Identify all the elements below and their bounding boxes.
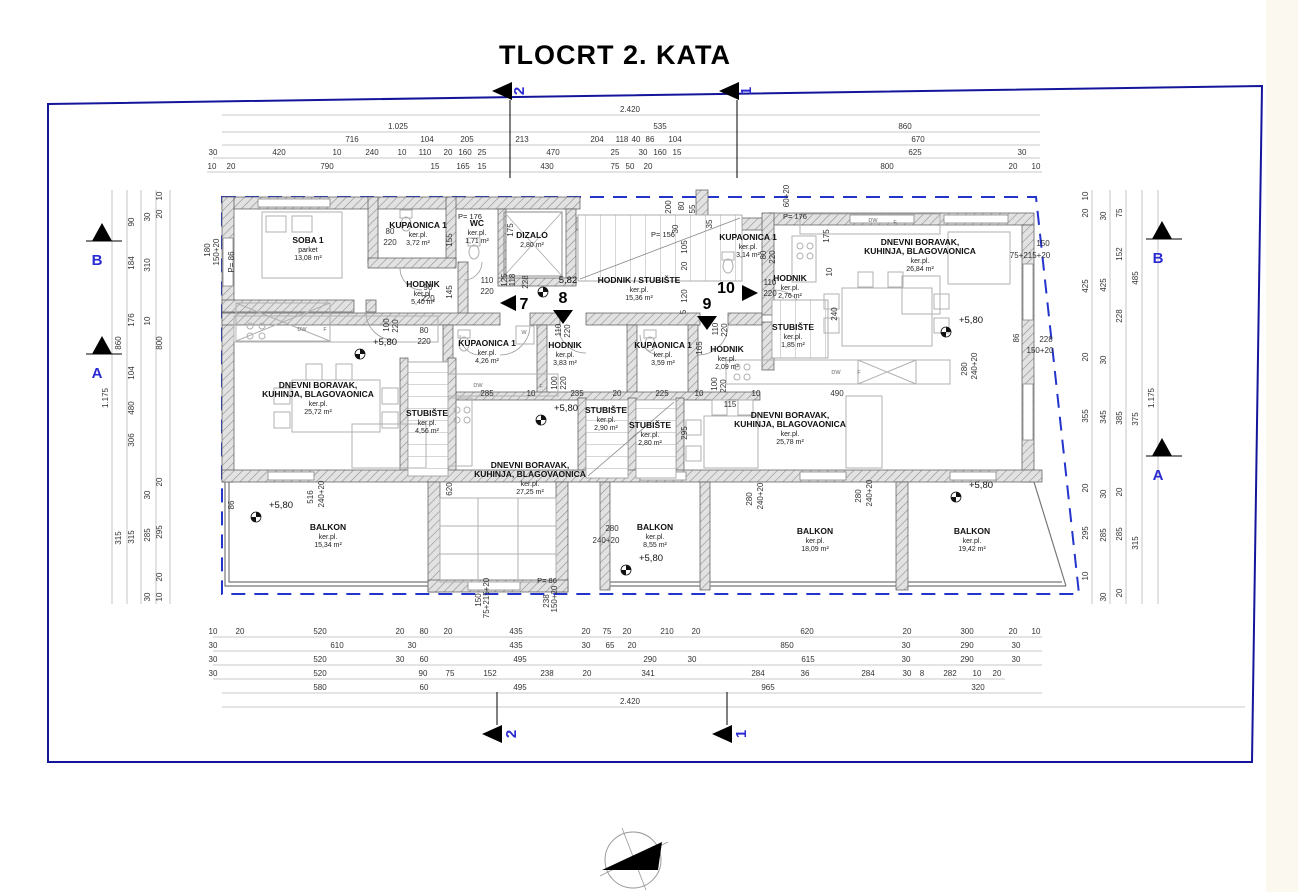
dim-label: 36 — [801, 669, 810, 678]
dim-label: 20 — [1081, 208, 1090, 217]
dim-label: 485 — [1131, 271, 1140, 285]
level-label: +5,80 — [959, 315, 983, 326]
dim-label: 30 — [408, 641, 417, 650]
dim-label: 150 — [1036, 239, 1050, 248]
dim-label: 110 — [554, 323, 563, 336]
level-marker-icon — [256, 512, 261, 517]
appliance-label: W — [521, 330, 527, 336]
dim-label: 20 — [903, 627, 912, 636]
dim-label: 86 — [227, 500, 236, 509]
level-marker-icon — [946, 327, 951, 332]
dim-label: 118 — [508, 273, 517, 286]
dim-label: 10 — [1081, 571, 1090, 580]
room-area: 26,84 m² — [906, 266, 934, 273]
dim-label: 55 — [688, 204, 697, 213]
dim-label: 30 — [902, 655, 911, 664]
dim-label: 75 — [611, 162, 620, 171]
dim-label: 20 — [155, 572, 164, 581]
dim-label: 425 — [1081, 279, 1090, 293]
dim-label: 30 — [688, 655, 697, 664]
dim-label: 228 — [1115, 309, 1124, 323]
dim-label: 35 — [705, 219, 714, 228]
dim-label: 40 — [632, 135, 641, 144]
dim-label: 860 — [898, 122, 912, 131]
dim-label: 315 — [1131, 536, 1140, 550]
dim-label: 86 — [646, 135, 655, 144]
dim-label: 20 — [396, 627, 405, 636]
dim-label: 470 — [546, 148, 560, 157]
dim-label: 20 — [623, 627, 632, 636]
apartment-arrow-icon — [742, 285, 758, 301]
dim-label: 10 — [1032, 627, 1041, 636]
dim-label: 240+20 — [970, 352, 979, 379]
floor-plan-page: TLOCRT 2. KATA — [0, 0, 1298, 892]
dim-label: 60 — [420, 683, 429, 692]
dim-label: 160 — [458, 148, 472, 157]
room-area: 8,55 m² — [643, 542, 667, 549]
room-area: 2,76 m² — [778, 293, 802, 300]
room-area: 2,80 m² — [638, 440, 662, 447]
dim-label: 220 — [421, 294, 435, 303]
dim-label: 355 — [1081, 409, 1090, 423]
dim-label: 10 — [155, 191, 164, 200]
dim-label: 290 — [960, 655, 974, 664]
dim-label: 228 — [521, 275, 530, 289]
level-label: +5,80 — [554, 403, 578, 414]
dim-label: 15 — [478, 162, 487, 171]
dim-label: 228 — [1039, 335, 1053, 344]
room-area: 4,26 m² — [475, 358, 499, 365]
dim-label: 285 — [480, 389, 494, 398]
dim-label: 80 — [677, 201, 686, 210]
dim-label: 30 — [209, 148, 218, 157]
level-label: +5,80 — [969, 480, 993, 491]
dim-label: 800 — [880, 162, 894, 171]
room-name: SOBA 1 — [292, 235, 324, 245]
dim-label: 118 — [616, 135, 629, 144]
section-arrow-icon — [1152, 438, 1172, 456]
apartment-number: 8 — [559, 290, 568, 307]
room-name: STUBIŠTE — [585, 404, 627, 415]
dim-label: 110 — [764, 278, 777, 287]
dim-label: 284 — [751, 669, 765, 678]
dim-label: 430 — [540, 162, 554, 171]
appliance-label: F — [857, 370, 861, 376]
room-name: HODNIK / STUBIŠTE — [598, 274, 681, 285]
dim-label: 20 — [444, 148, 453, 157]
dim-label: 1.175 — [101, 387, 110, 408]
dim-label: 290 — [960, 641, 974, 650]
dim-label: 30 — [902, 641, 911, 650]
dim-label: 30 — [903, 669, 912, 678]
room-finish: ker.pl. — [309, 401, 328, 408]
room-name: KUPAONICA 1 — [719, 232, 777, 242]
level-label: 5,82 — [559, 275, 578, 286]
room-finish: ker.pl. — [963, 538, 982, 545]
room-finish: ker.pl. — [806, 538, 825, 545]
dim-label: 315 — [114, 531, 123, 545]
dim-label: 20 — [993, 669, 1002, 678]
dim-label: 155 — [445, 233, 454, 247]
dim-label: 280 — [854, 489, 863, 503]
dim-label: 86 — [1012, 333, 1021, 342]
appliance-label: DW — [868, 218, 878, 224]
dim-label: 341 — [641, 669, 655, 678]
dim-label: 480 — [127, 401, 136, 415]
dim-label: 15 — [431, 162, 440, 171]
dim-label: 580 — [313, 683, 327, 692]
room-finish: ker.pl. — [319, 534, 338, 541]
dim-label: 104 — [127, 366, 136, 380]
dim-label: 20 — [1115, 588, 1124, 597]
dim-label: 104 — [668, 135, 682, 144]
dim-label: 10 — [527, 389, 536, 398]
level-label: +5,80 — [639, 553, 663, 564]
dim-label: 145 — [445, 285, 454, 299]
dim-label: 435 — [509, 641, 523, 650]
appliance-label: F — [323, 327, 327, 333]
dim-label: 220 — [417, 337, 431, 346]
dim-label: 20 — [583, 669, 592, 678]
dim-label: 280 — [960, 362, 969, 376]
dim-label: 238 — [540, 669, 554, 678]
dim-label: 10 — [825, 267, 834, 276]
room-name: STUBIŠTE — [772, 321, 814, 332]
dim-label: 285 — [1115, 527, 1124, 541]
dim-label: 345 — [1099, 410, 1108, 424]
dim-label: 220 — [563, 324, 572, 338]
dim-label: 490 — [830, 389, 844, 398]
dim-label: 90 — [424, 283, 433, 292]
dim-label: 20 — [155, 477, 164, 486]
dim-label: 295 — [1081, 526, 1090, 540]
dim-label: 110 — [481, 276, 494, 285]
dim-label: 615 — [801, 655, 815, 664]
dim-label: 30 — [143, 592, 152, 601]
dim-label: 495 — [513, 655, 527, 664]
dim-label: 160 — [653, 148, 667, 157]
dim-label: 175 — [506, 223, 515, 237]
dim-label: 120 — [680, 289, 689, 303]
dim-label: 965 — [761, 683, 775, 692]
room-area: 3,83 m² — [553, 360, 577, 367]
dim-label: 152 — [1115, 247, 1124, 261]
dim-label: 80 — [759, 250, 768, 259]
dim-label: 80 — [420, 326, 429, 335]
section-label: 2 — [511, 87, 528, 95]
parapet-label: P= 86 — [537, 576, 557, 585]
dim-label: 20 — [444, 627, 453, 636]
dim-label: 30 — [1099, 592, 1108, 601]
dim-label: 10 — [398, 148, 407, 157]
room-name: BALKON — [954, 526, 990, 536]
dim-label: 75+215+20 — [1010, 251, 1051, 260]
room-name: KUPAONICA 1 — [389, 220, 447, 230]
level-marker-icon — [941, 332, 946, 337]
dim-label: 115 — [724, 400, 737, 409]
room-finish: ker.pl. — [718, 356, 737, 363]
dim-label: 165 — [456, 162, 470, 171]
dim-label: 30 — [1012, 641, 1021, 650]
level-label: +5,80 — [373, 337, 397, 348]
dim-label: 610 — [330, 641, 344, 650]
apartment-arrow-icon — [500, 295, 516, 311]
dim-label: 20 — [692, 627, 701, 636]
dim-label: 110 — [419, 148, 432, 157]
dim-label: 670 — [911, 135, 925, 144]
section-arrow-icon — [92, 223, 112, 241]
room-area: 1,71 m² — [465, 238, 489, 245]
dim-label: 90 — [419, 669, 428, 678]
section-arrow-icon — [482, 725, 502, 743]
dim-label: 535 — [653, 122, 667, 131]
level-marker-icon — [360, 349, 365, 354]
room-area: 27,25 m² — [516, 489, 544, 496]
apartment-number: 9 — [703, 296, 712, 313]
apartment-number: 10 — [717, 280, 735, 297]
dim-label: 20 — [155, 209, 164, 218]
dim-label: 20 — [1009, 162, 1018, 171]
dim-label: 716 — [345, 135, 359, 144]
dim-label: 100 — [550, 376, 559, 390]
dim-label: 20 — [680, 261, 689, 270]
dim-label: 520 — [313, 627, 327, 636]
room-finish: ker.pl. — [597, 417, 616, 424]
dim-label: 10 — [155, 592, 164, 601]
dim-label: 220 — [763, 289, 777, 298]
dim-label: 20 — [1081, 483, 1090, 492]
dim-label: 240+20 — [865, 479, 874, 506]
parapet-label: P= 176 — [783, 212, 807, 221]
room-finish: ker.pl. — [478, 350, 497, 357]
dim-label: 495 — [513, 683, 527, 692]
section-label: A — [92, 365, 103, 382]
room-area: 3,14 m² — [736, 252, 760, 259]
room-finish: ker.pl. — [739, 244, 758, 251]
dim-label: 1.025 — [388, 122, 409, 131]
dim-label: 240+20 — [317, 480, 326, 507]
dim-label: 1.175 — [1147, 387, 1156, 408]
dim-label: 282 — [943, 669, 957, 678]
dim-label: 220 — [559, 376, 568, 390]
room-finish: parket — [298, 247, 318, 254]
room-finish: ker.pl. — [781, 431, 800, 438]
dim-label: 30 — [1099, 489, 1108, 498]
dim-label: 10 — [973, 669, 982, 678]
dim-label: 220 — [480, 287, 494, 296]
dim-label: 20 — [1009, 627, 1018, 636]
room-name: KUHINJA, BLAGOVAONICA — [474, 469, 586, 479]
dim-label: 30 — [209, 641, 218, 650]
dim-label: 176 — [127, 313, 136, 327]
dim-label: 2.420 — [620, 697, 641, 706]
room-area: 25,78 m² — [776, 439, 804, 446]
dim-label: 220 — [719, 379, 728, 393]
section-arrow-icon — [712, 725, 732, 743]
level-marker-icon — [538, 292, 543, 297]
section-label: 1 — [733, 730, 750, 738]
room-finish: ker.pl. — [468, 230, 487, 237]
dim-label: 20 — [236, 627, 245, 636]
dim-label: 30 — [1012, 655, 1021, 664]
dim-label: 860 — [114, 336, 123, 350]
room-finish: ker.pl. — [641, 432, 660, 439]
dim-label: 240 — [830, 307, 839, 321]
dim-label: 290 — [643, 655, 657, 664]
dim-label: 30 — [1099, 211, 1108, 220]
level-marker-icon — [251, 517, 256, 522]
dim-label: 2.420 — [620, 105, 641, 114]
dim-label: 385 — [1115, 411, 1124, 425]
room-name: DIZALO — [516, 230, 548, 240]
room-name: HODNIK — [710, 344, 744, 354]
dim-label: 75+215+20 — [482, 577, 491, 618]
dim-label: 240 — [365, 148, 379, 157]
room-area: 3,59 m² — [651, 360, 675, 367]
dim-label: 200 — [664, 200, 673, 214]
dim-label: 10 — [333, 148, 342, 157]
dim-label: 520 — [313, 669, 327, 678]
dim-label: 90 — [127, 217, 136, 226]
room-finish: ker.pl. — [654, 352, 673, 359]
section-label: B — [92, 252, 103, 269]
dim-label: 516 — [306, 490, 315, 504]
dim-label: 75 — [603, 627, 612, 636]
room-finish: ker.pl. — [409, 232, 428, 239]
dim-label: 25 — [611, 148, 620, 157]
dim-label: 30 — [209, 669, 218, 678]
room-area: 3,72 m² — [406, 240, 430, 247]
dim-label: 20 — [644, 162, 653, 171]
room-area: 25,72 m² — [304, 409, 332, 416]
dim-label: 10 — [208, 162, 217, 171]
dim-label: 425 — [1099, 278, 1108, 292]
north-compass-icon — [600, 828, 668, 890]
section-label: A — [1153, 467, 1164, 484]
section-label: 1 — [738, 87, 755, 95]
level-marker-icon — [536, 420, 541, 425]
dim-label: 850 — [780, 641, 794, 650]
dim-label: 620 — [445, 482, 454, 496]
dim-label: 213 — [515, 135, 529, 144]
dim-label: 80 — [420, 627, 429, 636]
dim-label: 10 — [695, 389, 704, 398]
dim-label: 150+20 — [212, 238, 221, 265]
dim-label: 625 — [908, 148, 922, 157]
room-finish: ker.pl. — [646, 534, 665, 541]
room-area: 2,80 m² — [520, 242, 544, 249]
room-area: 18,09 m² — [801, 546, 829, 553]
dim-label: 320 — [971, 683, 985, 692]
section-arrow-icon — [92, 336, 112, 354]
section-label: B — [1153, 250, 1164, 267]
dim-label: 110 — [711, 322, 720, 335]
room-name: BALKON — [637, 522, 673, 532]
dim-label: 10 — [1032, 162, 1041, 171]
dim-label: 75 — [446, 669, 455, 678]
dim-label: 80 — [386, 227, 395, 236]
dim-label: 75 — [1115, 208, 1124, 217]
room-name: KUPAONICA 1 — [634, 340, 692, 350]
room-area: 2,09 m² — [715, 364, 739, 371]
dim-label: P= 86 — [227, 251, 236, 273]
appliance-label: DW — [297, 327, 307, 333]
parapet-label: P= 176 — [458, 212, 482, 221]
room-finish: ker.pl. — [418, 420, 437, 427]
dim-label: 790 — [320, 162, 334, 171]
dim-label: 184 — [127, 256, 136, 270]
dim-label: 60 — [420, 655, 429, 664]
dim-label: 150+20 — [1027, 346, 1054, 355]
dim-label: 280 — [745, 492, 754, 506]
appliance-label: DW — [831, 370, 841, 376]
dim-label: 306 — [127, 433, 136, 447]
dim-label: 30 — [582, 641, 591, 650]
level-marker-icon — [951, 497, 956, 502]
level-marker-icon — [626, 565, 631, 570]
dim-label: 420 — [272, 148, 286, 157]
dim-label: 150+20 — [550, 585, 559, 612]
dim-label: 30 — [1099, 355, 1108, 364]
dim-label: 15 — [673, 148, 682, 157]
dim-label: 375 — [1131, 412, 1140, 426]
room-name: KUHINJA, BLAGOVAONICA — [734, 419, 846, 429]
dim-label: 204 — [590, 135, 604, 144]
room-finish: ker.pl. — [911, 258, 930, 265]
dim-label: 300 — [960, 627, 974, 636]
parapet-label: P= 156 — [651, 230, 675, 239]
dim-label: 5 — [679, 309, 688, 314]
dim-label: 20 — [1115, 487, 1124, 496]
dim-label: 210 — [660, 627, 674, 636]
dim-label: 10 — [752, 389, 761, 398]
room-area: 15,36 m² — [625, 295, 653, 302]
room-finish: ker.pl. — [784, 334, 803, 341]
dim-label: 104 — [420, 135, 434, 144]
room-name: HODNIK — [548, 340, 582, 350]
level-marker-icon — [543, 287, 548, 292]
room-area: 2,90 m² — [594, 425, 618, 432]
room-name: KUHINJA, BLAGOVAONICA — [262, 389, 374, 399]
apartment-number: 7 — [520, 296, 529, 313]
room-area: 4,56 m² — [415, 428, 439, 435]
room-area: 13,08 m² — [294, 255, 322, 262]
dim-label: 30 — [209, 655, 218, 664]
level-marker-icon — [956, 492, 961, 497]
dim-label: 180 — [203, 243, 212, 257]
section-label: 2 — [503, 730, 520, 738]
dim-label: 30 — [396, 655, 405, 664]
room-name: HODNIK — [773, 273, 807, 283]
dim-label: 310 — [143, 258, 152, 272]
room-finish: ker.pl. — [521, 481, 540, 488]
dim-label: 100 — [382, 318, 391, 332]
room-name: STUBIŠTE — [406, 407, 448, 418]
room-finish: ker.pl. — [556, 352, 575, 359]
dim-label: 240+20 — [593, 536, 620, 545]
room-name: KUHINJA, BLAGOVAONICA — [864, 246, 976, 256]
dim-label: 220 — [768, 250, 777, 264]
section-arrow-icon — [1152, 221, 1172, 239]
room-name: BALKON — [310, 522, 346, 532]
dim-label: 284 — [861, 669, 875, 678]
dim-label: 30 — [143, 490, 152, 499]
dim-label: 435 — [509, 627, 523, 636]
dim-label: 235 — [570, 389, 584, 398]
dim-label: 220 — [383, 238, 397, 247]
dim-label: 65 — [606, 641, 615, 650]
dim-label: 10 — [143, 316, 152, 325]
